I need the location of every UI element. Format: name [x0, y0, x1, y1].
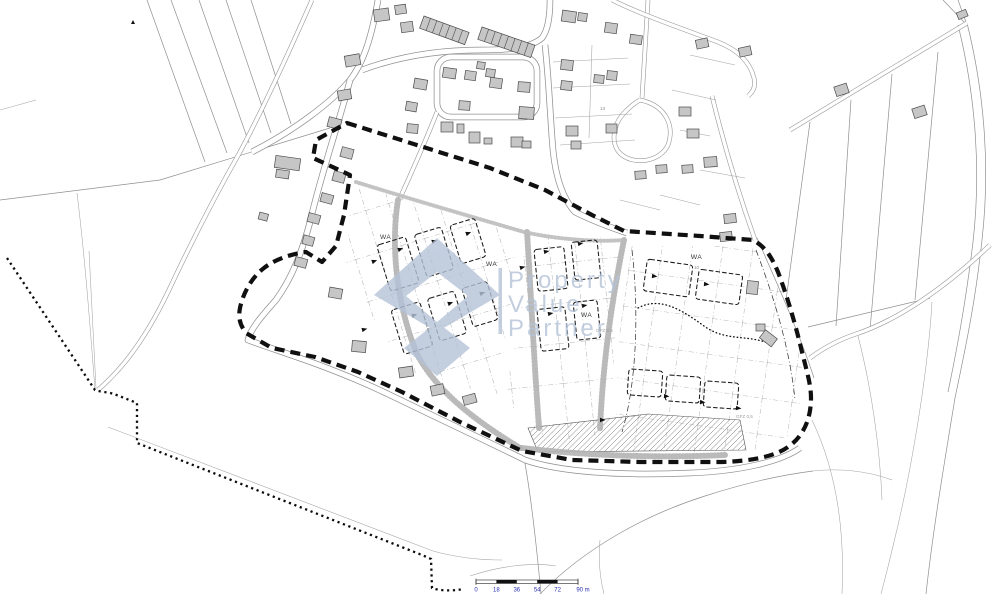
zoning-label-wa: WA [486, 261, 497, 268]
lot-number: 10 [694, 265, 700, 270]
scale-tick: 54 [534, 588, 541, 594]
scale-tick: 36 [513, 588, 520, 594]
watermark-text: Partner [508, 315, 608, 342]
zoning-label-wa: WA [380, 234, 391, 241]
scale-tick: 18 [493, 588, 500, 594]
terraced-row [420, 16, 470, 45]
scale-bar: 0 18 36 54 72 90 m [474, 579, 589, 594]
scale-tick: 90 m [576, 588, 589, 594]
gfz-annotation: GFZ 0,5 [736, 414, 753, 419]
scale-tick: 72 [554, 588, 561, 594]
watermark-divider [499, 268, 503, 334]
residential-parcel-lines [553, 45, 745, 210]
scale-tick: 0 [474, 588, 478, 594]
watermark-text: Value [508, 291, 583, 318]
zoning-label-wa: WA [691, 254, 702, 261]
lot-number: 13 [600, 106, 606, 111]
plan-interior: WA WA WA WA 10 13 GFZ 0,5 GFZ 0,5 [131, 20, 806, 458]
map-canvas: WA WA WA WA 10 13 GFZ 0,5 GFZ 0,5 [0, 0, 1000, 594]
watermark-text: Property [508, 267, 623, 294]
development-plan-map: WA WA WA WA 10 13 GFZ 0,5 GFZ 0,5 [0, 0, 1000, 594]
scale-bar-labels: 0 18 36 54 72 90 m [474, 588, 589, 594]
